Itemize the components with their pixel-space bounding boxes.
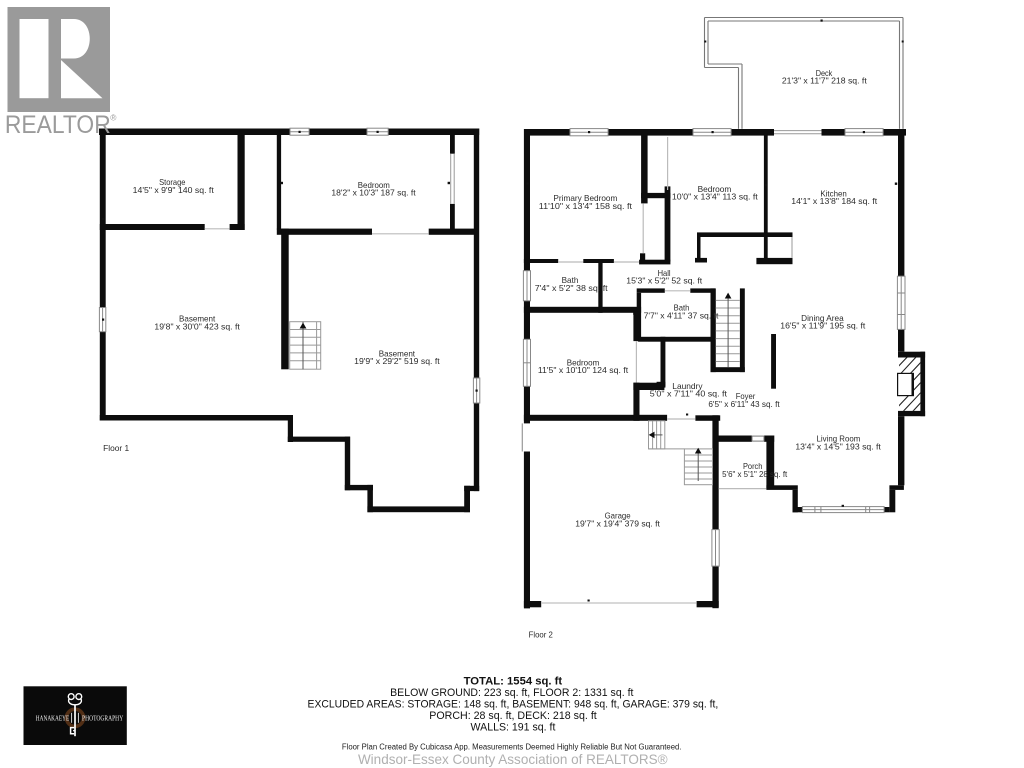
svg-text:6'5" x 6'11" 43 sq. ft: 6'5" x 6'11" 43 sq. ft	[708, 400, 780, 409]
svg-text:Windsor-Essex County Associati: Windsor-Essex County Association of REAL…	[358, 751, 668, 767]
svg-text:5'6" x 5'1" 28 sq. ft: 5'6" x 5'1" 28 sq. ft	[722, 470, 788, 479]
svg-text:BELOW GROUND: 223 sq. ft, FLOO: BELOW GROUND: 223 sq. ft, FLOOR 2: 1331 …	[390, 687, 633, 699]
svg-text:11'10" x 13'4" 158 sq. ft: 11'10" x 13'4" 158 sq. ft	[539, 202, 633, 211]
svg-text:HANAKAEYE: HANAKAEYE	[36, 715, 69, 722]
svg-text:®: ®	[110, 112, 117, 122]
svg-text:14'5" x 9'9" 140 sq. ft: 14'5" x 9'9" 140 sq. ft	[133, 186, 215, 195]
svg-text:13'4" x 14'5" 193 sq. ft: 13'4" x 14'5" 193 sq. ft	[795, 442, 881, 451]
svg-text:10'0" x 13'4" 113 sq. ft: 10'0" x 13'4" 113 sq. ft	[672, 193, 759, 202]
svg-text:18'2" x 10'3" 187 sq. ft: 18'2" x 10'3" 187 sq. ft	[331, 189, 416, 198]
svg-text:14'1" x 13'8" 184 sq. ft: 14'1" x 13'8" 184 sq. ft	[791, 197, 878, 206]
svg-text:7'7" x 4'11" 37 sq. ft: 7'7" x 4'11" 37 sq. ft	[644, 311, 719, 320]
svg-text:Floor 1: Floor 1	[103, 444, 130, 453]
svg-text:WALLS: 191 sq. ft: WALLS: 191 sq. ft	[471, 721, 556, 733]
svg-text:21'3" x 11'7" 218 sq. ft: 21'3" x 11'7" 218 sq. ft	[782, 76, 868, 85]
svg-text:19'7" x 19'4" 379 sq. ft: 19'7" x 19'4" 379 sq. ft	[575, 519, 660, 528]
svg-text:7'4" x 5'2" 38 sq. ft: 7'4" x 5'2" 38 sq. ft	[535, 284, 609, 293]
svg-text:TOTAL: 1554 sq. ft: TOTAL: 1554 sq. ft	[464, 676, 563, 688]
svg-text:Floor 2: Floor 2	[529, 631, 554, 640]
svg-text:5'0" x 7'11" 40 sq. ft: 5'0" x 7'11" 40 sq. ft	[650, 389, 728, 398]
svg-text:EXCLUDED AREAS: STORAGE: 148 s: EXCLUDED AREAS: STORAGE: 148 sq. ft, BAS…	[308, 699, 719, 711]
svg-text:PORCH: 28 sq. ft, DECK: 218 sq: PORCH: 28 sq. ft, DECK: 218 sq. ft	[429, 710, 597, 722]
svg-text:19'8" x 30'0" 423 sq. ft: 19'8" x 30'0" 423 sq. ft	[154, 323, 240, 332]
svg-text:15'3" x 5'2" 52 sq. ft: 15'3" x 5'2" 52 sq. ft	[626, 277, 703, 286]
svg-text:19'9" x 29'2" 519 sq. ft: 19'9" x 29'2" 519 sq. ft	[354, 357, 440, 366]
svg-text:REALTOR: REALTOR	[5, 112, 111, 139]
svg-text:PHOTOGRAPHY: PHOTOGRAPHY	[82, 715, 123, 722]
svg-text:11'5" x 10'10" 124 sq. ft: 11'5" x 10'10" 124 sq. ft	[538, 366, 629, 375]
svg-text:16'5" x 11'9" 195 sq. ft: 16'5" x 11'9" 195 sq. ft	[780, 322, 866, 331]
